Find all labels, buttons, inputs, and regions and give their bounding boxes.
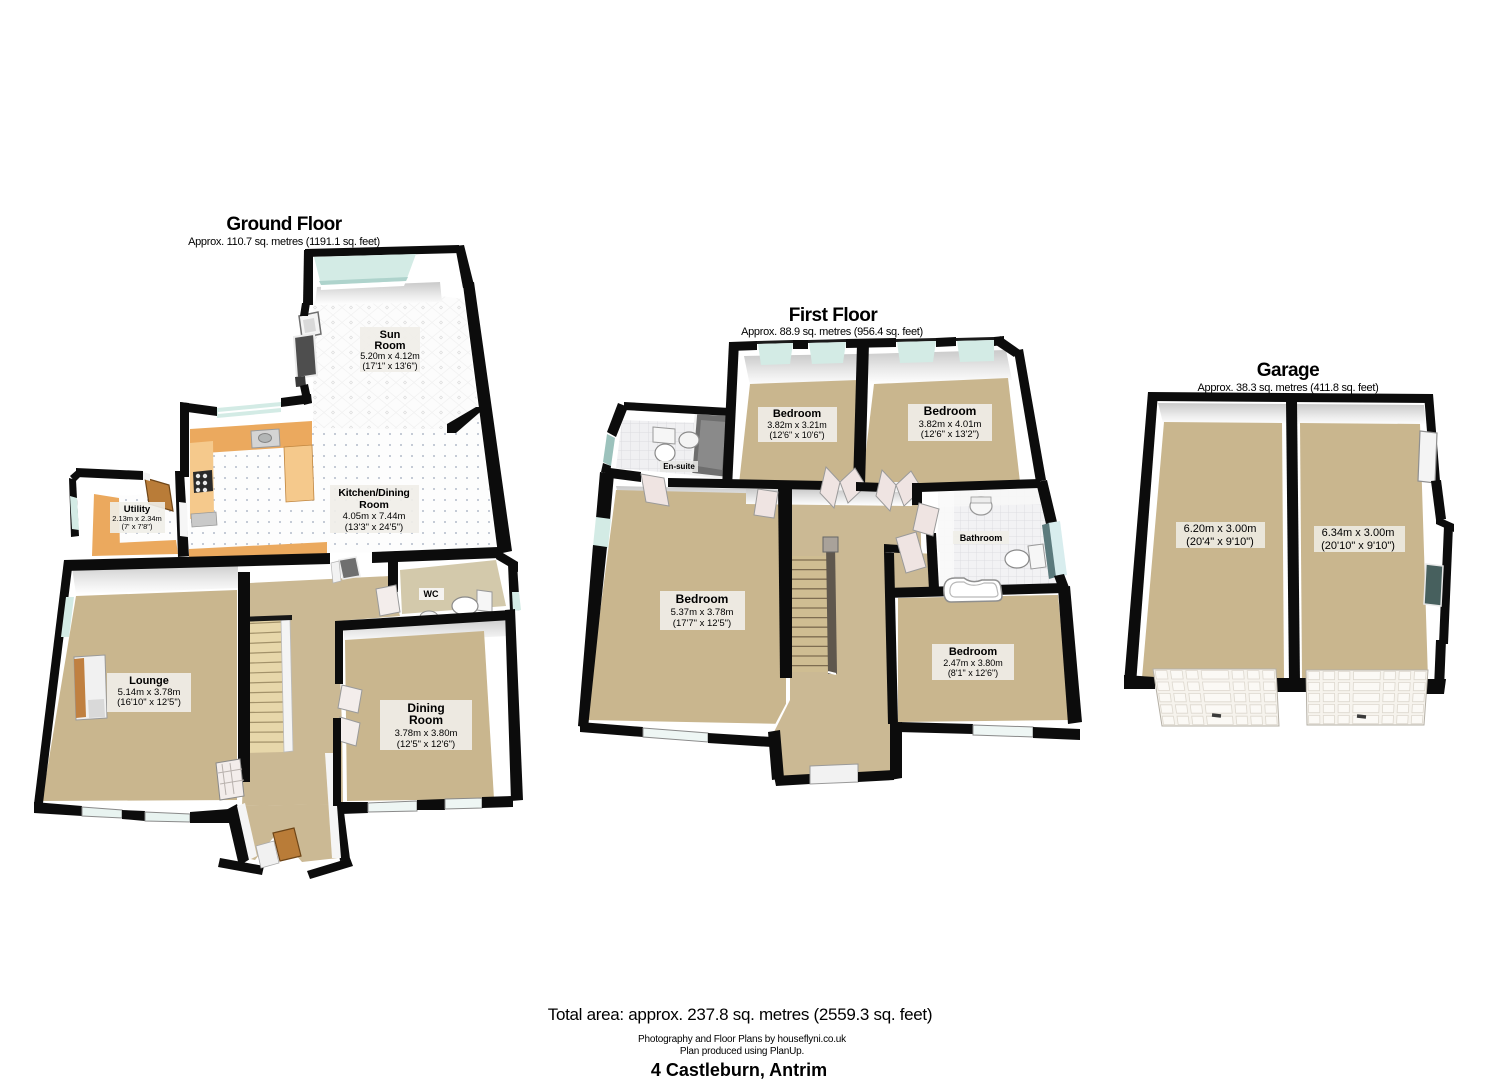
svg-text:4 Castleburn, Antrim: 4 Castleburn, Antrim: [651, 1060, 827, 1080]
svg-text:Bedroom: Bedroom: [676, 592, 729, 606]
svg-text:Garage: Garage: [1257, 360, 1319, 381]
svg-text:(8'1" x 12'6"): (8'1" x 12'6"): [948, 668, 998, 678]
svg-text:First Floor: First Floor: [789, 305, 879, 326]
svg-text:Total area: approx. 237.8 sq.: Total area: approx. 237.8 sq. metres (25…: [548, 1005, 932, 1024]
svg-text:Plan produced using PlanUp.: Plan produced using PlanUp.: [680, 1046, 804, 1057]
svg-text:(17'7" x 12'5"): (17'7" x 12'5"): [673, 618, 731, 629]
svg-text:Kitchen/Dining: Kitchen/Dining: [338, 487, 409, 499]
svg-text:Bedroom: Bedroom: [924, 404, 977, 418]
svg-text:3.78m x 3.80m: 3.78m x 3.80m: [395, 728, 458, 739]
svg-text:5.20m x 4.12m: 5.20m x 4.12m: [360, 351, 420, 361]
svg-text:(12'6" x 10'6"): (12'6" x 10'6"): [769, 430, 824, 440]
svg-text:Room: Room: [359, 499, 389, 511]
svg-text:4.05m x 7.44m: 4.05m x 7.44m: [343, 511, 406, 522]
svg-text:WC: WC: [424, 589, 439, 599]
svg-text:Room: Room: [409, 713, 443, 727]
svg-text:(12'6" x 13'2"): (12'6" x 13'2"): [921, 429, 979, 440]
svg-text:(12'5" x 12'6"): (12'5" x 12'6"): [397, 739, 455, 750]
svg-text:Lounge: Lounge: [129, 675, 169, 687]
svg-text:Bathroom: Bathroom: [960, 533, 1003, 543]
svg-text:(17'1" x 13'6"): (17'1" x 13'6"): [362, 361, 417, 371]
svg-text:(7' x 7'8"): (7' x 7'8"): [122, 522, 153, 531]
svg-text:Bedroom: Bedroom: [773, 408, 822, 420]
svg-text:(20'4" x 9'10"): (20'4" x 9'10"): [1186, 536, 1254, 548]
svg-text:Approx. 38.3 sq. metres (411.8: Approx. 38.3 sq. metres (411.8 sq. feet): [1197, 382, 1378, 394]
svg-text:2.47m x 3.80m: 2.47m x 3.80m: [943, 658, 1003, 668]
svg-text:(13'3" x 24'5"): (13'3" x 24'5"): [345, 522, 403, 533]
svg-text:Approx. 110.7 sq. metres (1191: Approx. 110.7 sq. metres (1191.1 sq. fee…: [188, 236, 380, 248]
svg-text:Ground Floor: Ground Floor: [226, 214, 342, 235]
svg-text:5.37m x 3.78m: 5.37m x 3.78m: [671, 607, 734, 618]
svg-text:(16'10" x 12'5"): (16'10" x 12'5"): [117, 697, 181, 708]
svg-text:(20'10" x 9'10"): (20'10" x 9'10"): [1321, 540, 1395, 552]
svg-text:En-suite: En-suite: [663, 462, 695, 471]
svg-text:Bedroom: Bedroom: [949, 646, 998, 658]
svg-text:3.82m x 3.21m: 3.82m x 3.21m: [767, 420, 827, 430]
svg-text:6.20m x 3.00m: 6.20m x 3.00m: [1184, 523, 1257, 535]
svg-text:Approx. 88.9 sq. metres (956.4: Approx. 88.9 sq. metres (956.4 sq. feet): [741, 326, 923, 338]
svg-text:6.34m x 3.00m: 6.34m x 3.00m: [1322, 527, 1395, 539]
svg-text:Photography and Floor Plans by: Photography and Floor Plans by houseflyn…: [638, 1034, 847, 1045]
